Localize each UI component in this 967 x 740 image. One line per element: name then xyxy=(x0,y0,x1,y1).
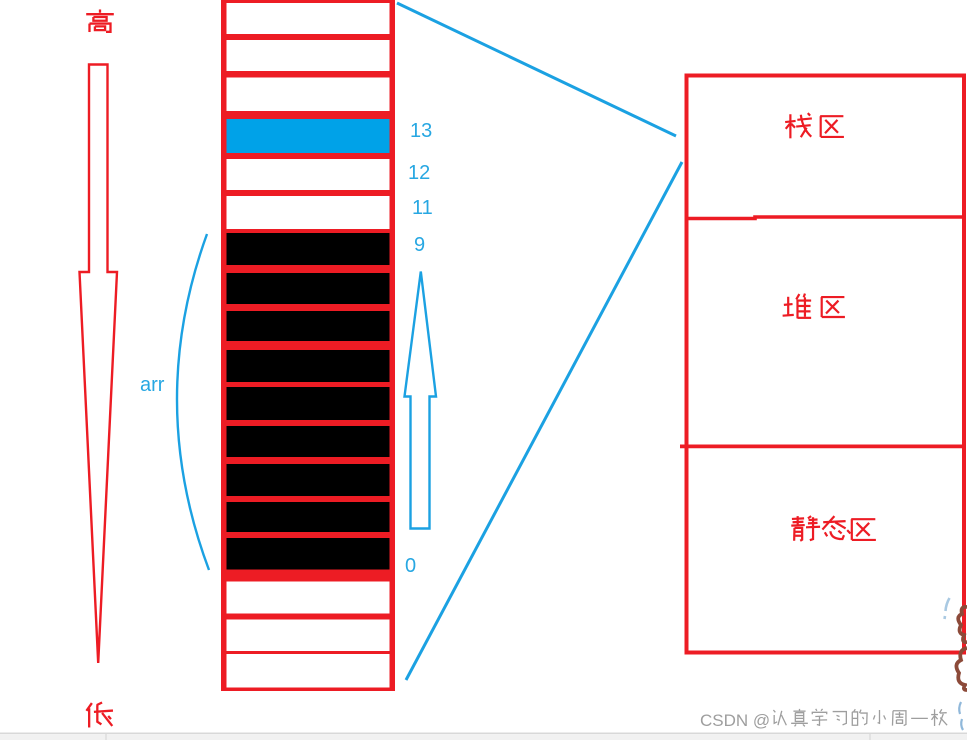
svg-text:0: 0 xyxy=(405,555,416,577)
svg-text:11: 11 xyxy=(412,197,433,219)
svg-text:arr: arr xyxy=(140,374,165,396)
svg-text:9: 9 xyxy=(414,234,425,256)
svg-text:12: 12 xyxy=(408,162,430,184)
svg-text:13: 13 xyxy=(410,120,432,142)
svg-text:CSDN @: CSDN @ xyxy=(700,711,770,730)
